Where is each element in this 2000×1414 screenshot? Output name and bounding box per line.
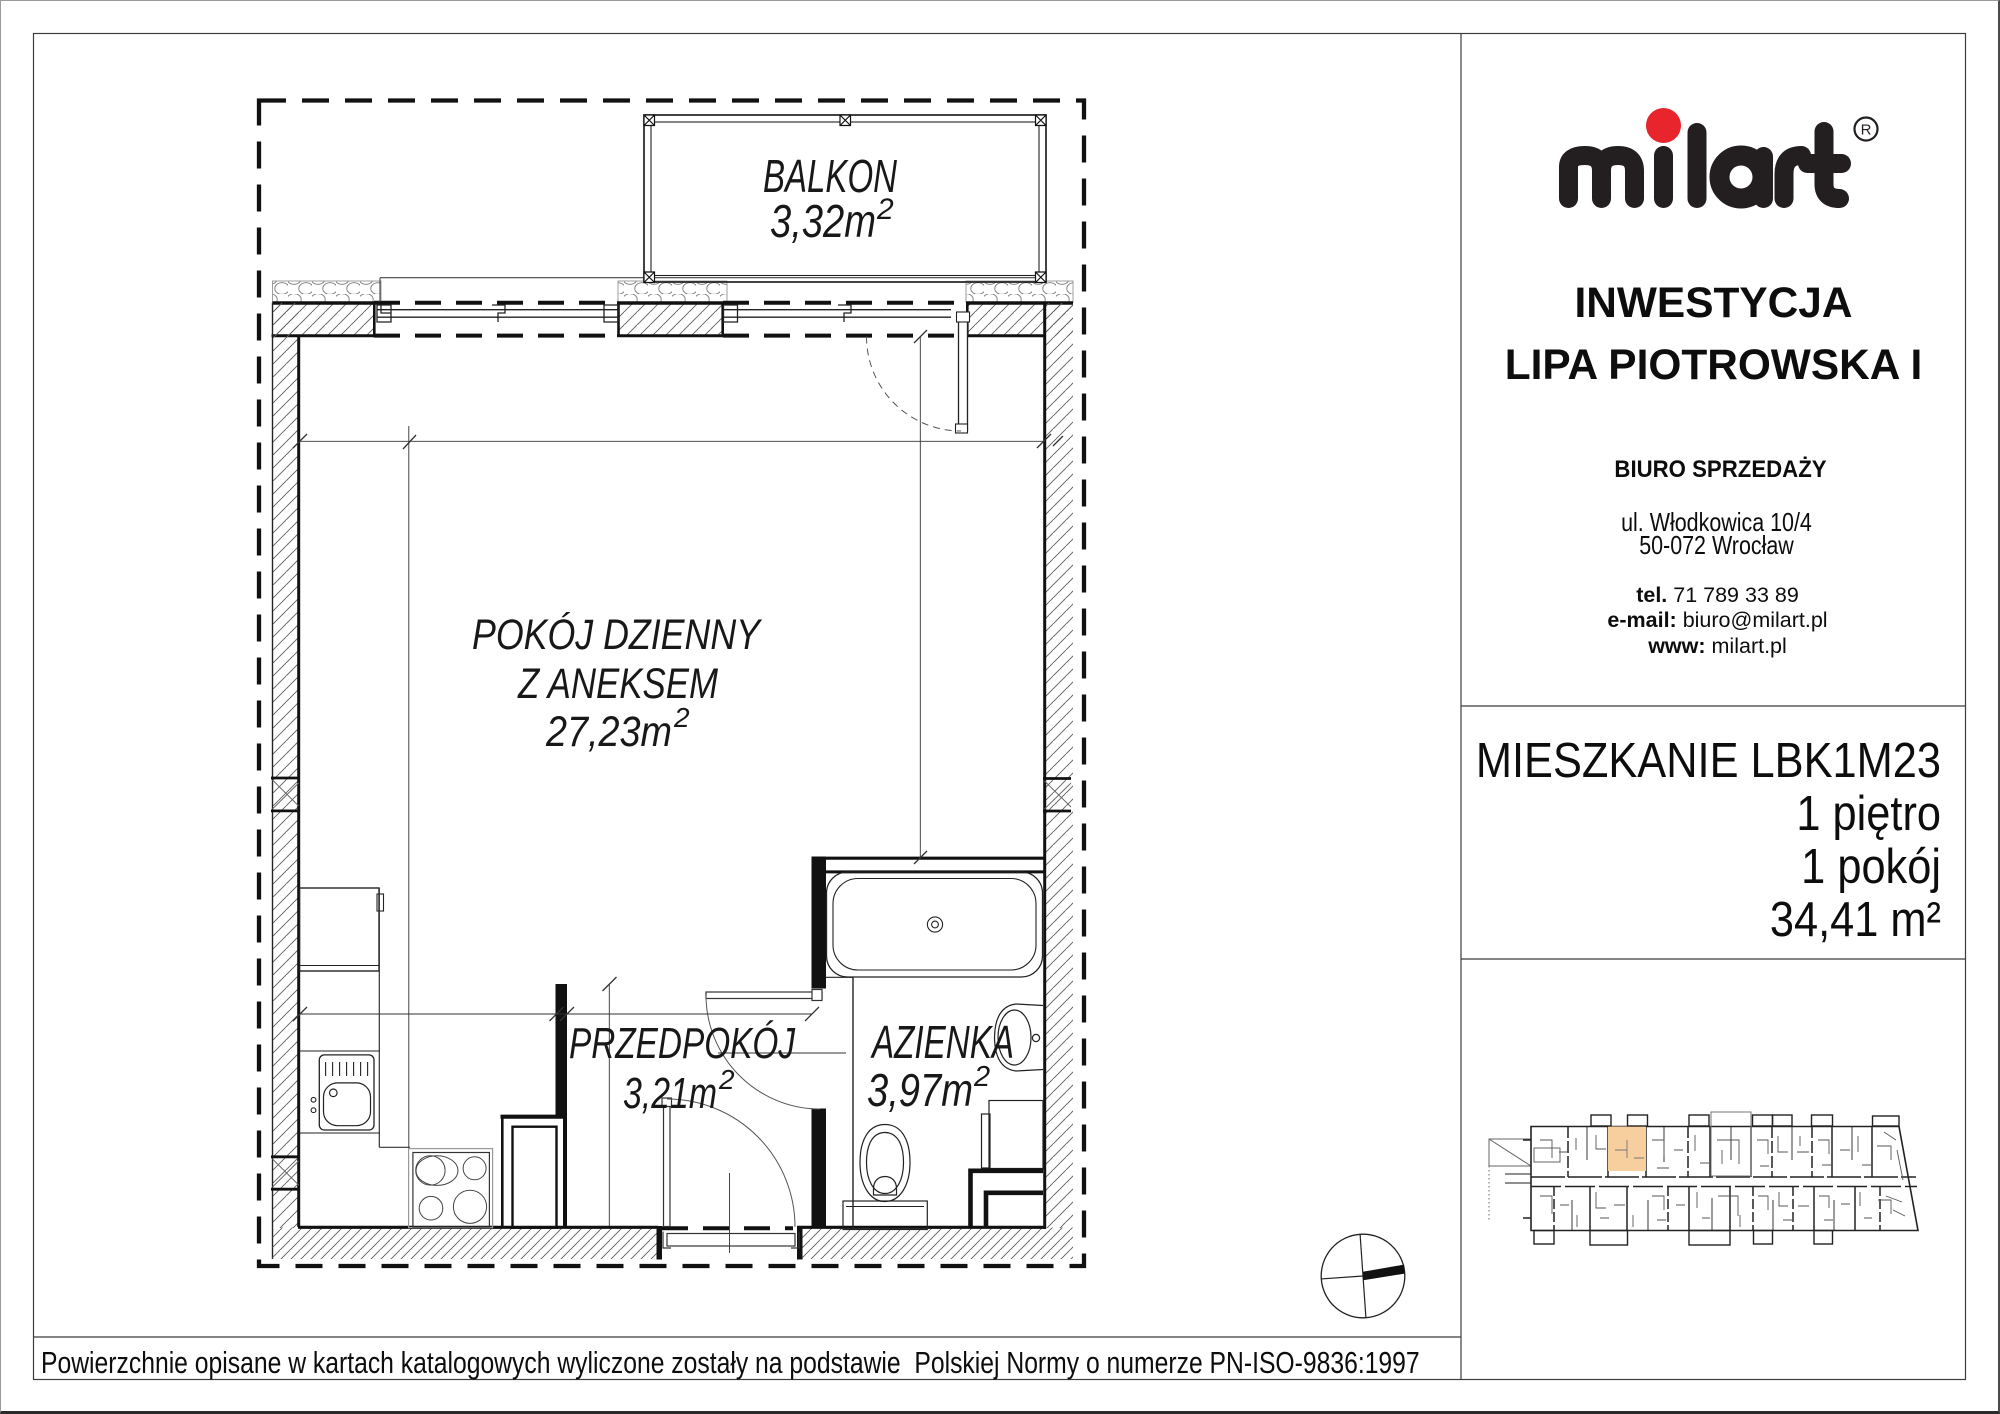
svg-text:3,32m: 3,32m [770, 195, 876, 247]
svg-text:3,21m: 3,21m [623, 1069, 717, 1118]
svg-text:2: 2 [973, 1061, 990, 1093]
svg-text:AZIENKA: AZIENKA [870, 1016, 1014, 1068]
svg-text:2: 2 [718, 1064, 735, 1095]
svg-text:POKÓJ DZIENNY: POKÓJ DZIENNY [472, 611, 763, 659]
svg-text:Z ANEKSEM: Z ANEKSEM [517, 660, 718, 708]
svg-text:PRZEDPOKÓJ: PRZEDPOKÓJ [569, 1019, 796, 1068]
svg-text:2: 2 [673, 702, 690, 733]
svg-text:3,97m: 3,97m [867, 1064, 973, 1116]
svg-text:27,23m: 27,23m [545, 708, 672, 756]
svg-text:2: 2 [876, 193, 894, 226]
svg-text:R: R [1861, 122, 1872, 139]
